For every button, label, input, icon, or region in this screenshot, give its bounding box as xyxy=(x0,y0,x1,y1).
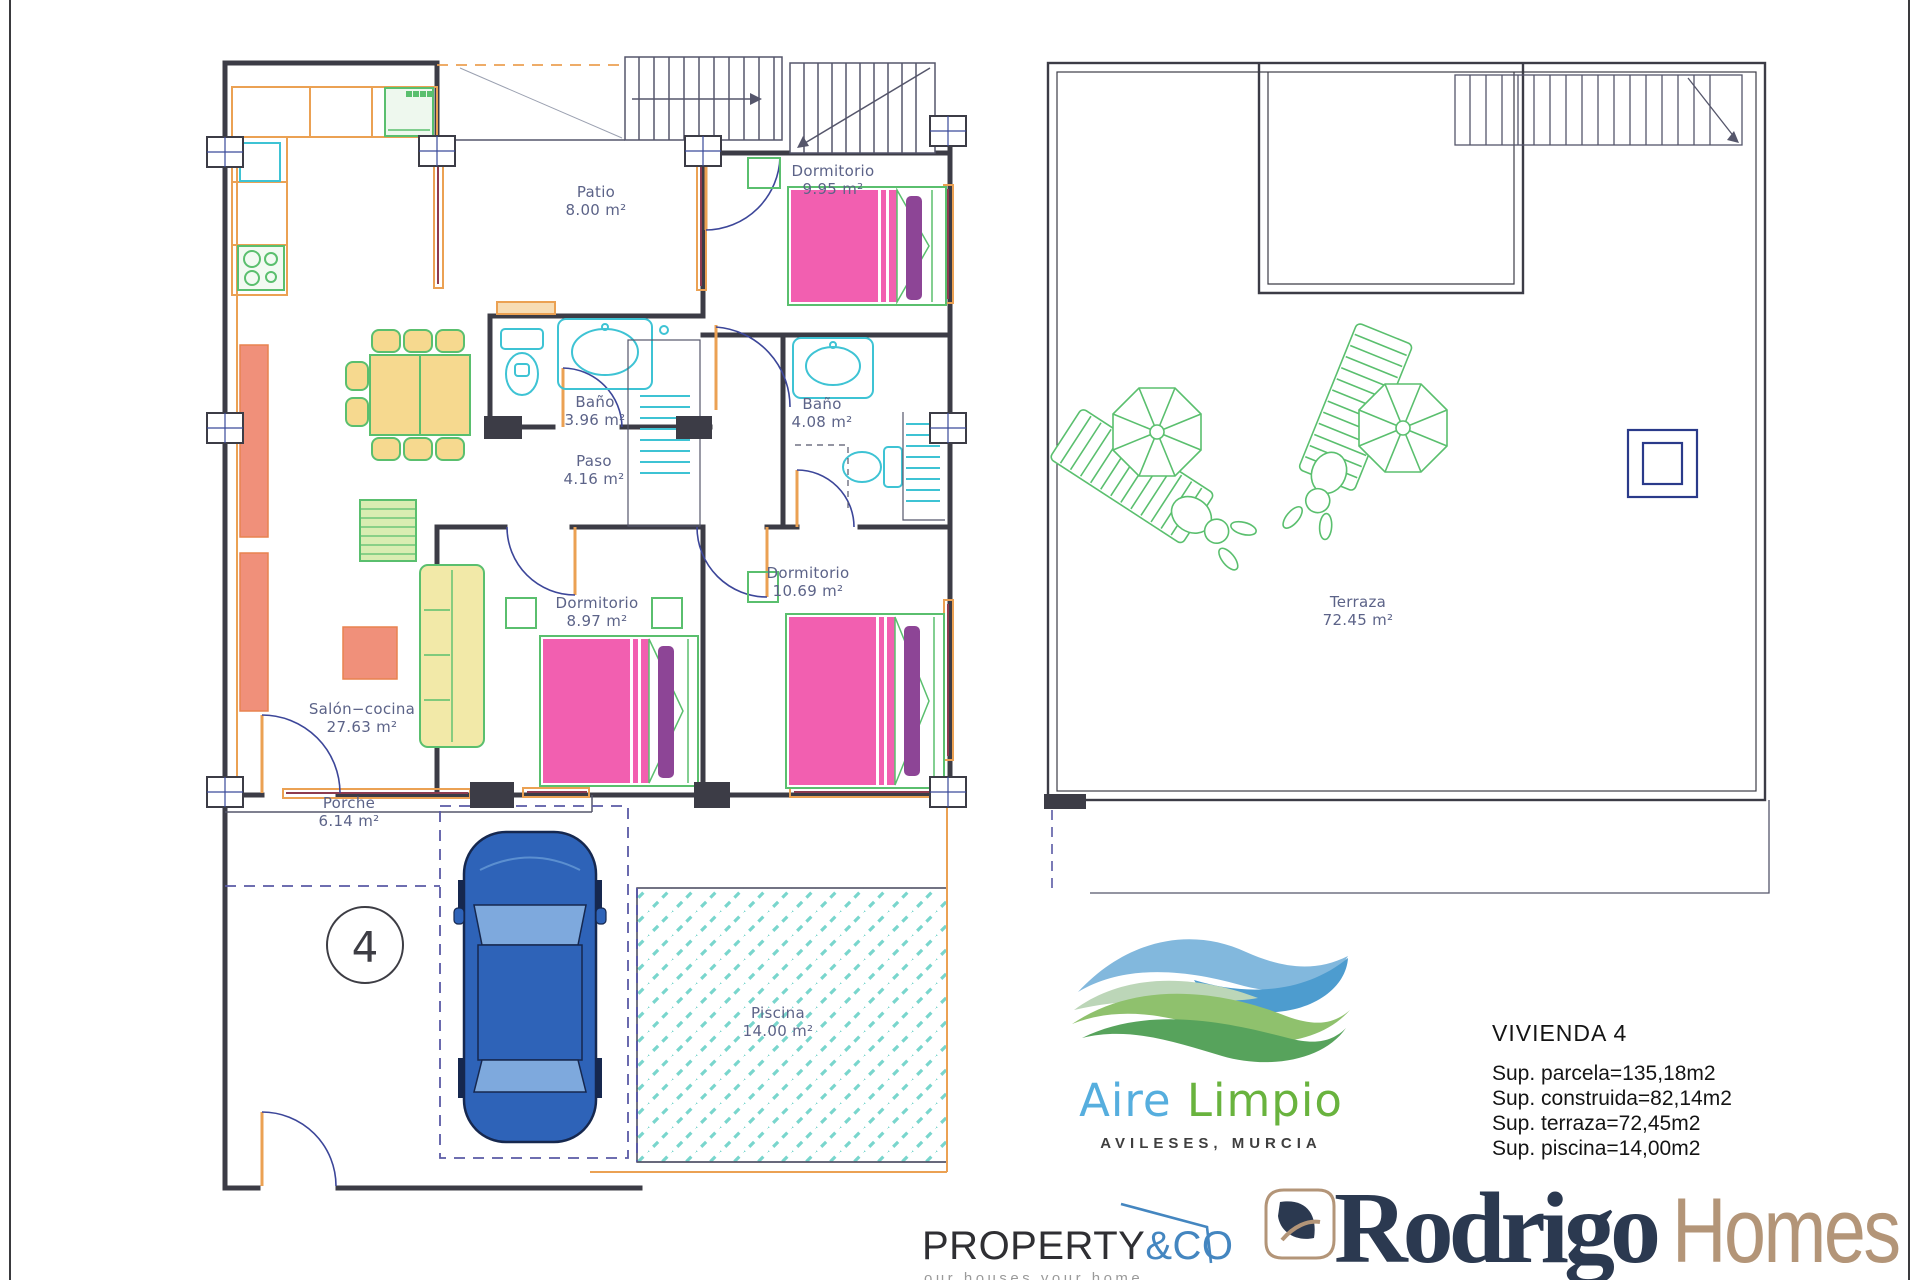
room-label-dormitorio-mid: Dormitorio 8.97 m² xyxy=(556,594,639,630)
car xyxy=(454,832,606,1142)
property-co-tagline: our houses your home xyxy=(924,1270,1143,1280)
coffee-table xyxy=(343,627,397,679)
terrace-pillar xyxy=(1044,794,1086,809)
unit-number: 4 xyxy=(352,923,379,972)
room-label-bano-1: Baño 3.96 m² xyxy=(565,393,626,429)
toilet-bano2 xyxy=(843,447,902,487)
room-label-paso: Paso 4.16 m² xyxy=(564,452,625,488)
surface-info-block: VIVIENDA 4 Sup. parcela=135,18m2 Sup. co… xyxy=(1492,1020,1732,1161)
terrace-furniture xyxy=(1049,323,1447,578)
kitchen-sink xyxy=(240,143,280,181)
sink-bano1 xyxy=(558,319,652,389)
floorplan-sheet: Patio 8.00 m² Dormitorio 9.95 m² Baño 3.… xyxy=(0,0,1920,1280)
room-label-piscina: Piscina 14.00 m² xyxy=(743,1004,814,1040)
fridge xyxy=(385,88,433,136)
surface-line: Sup. parcela=135,18m2 xyxy=(1492,1061,1732,1086)
surface-line: Sup. piscina=14,00m2 xyxy=(1492,1136,1732,1161)
bed-dormitorio-mid xyxy=(540,636,698,786)
skylight-square xyxy=(1628,430,1697,497)
stair-run-left xyxy=(625,57,782,140)
vivienda-title: VIVIENDA 4 xyxy=(1492,1020,1732,1047)
aire-limpio-subtitle: AVILESES, MURCIA xyxy=(1066,1135,1356,1152)
bed-dormitorio-top xyxy=(788,187,946,305)
stair-run-right xyxy=(790,63,935,153)
surface-line: Sup. construida=82,14m2 xyxy=(1492,1086,1732,1111)
umbrella xyxy=(1113,388,1201,476)
bed-dormitorio-right xyxy=(786,614,944,788)
toilet-bano1 xyxy=(501,329,543,395)
stove xyxy=(238,246,284,290)
room-label-porche: Porche 6.14 m² xyxy=(319,794,380,830)
aire-limpio-logo: Aire Limpio AVILESES, MURCIA xyxy=(1066,926,1356,1152)
room-label-dormitorio-top: Dormitorio 9.95 m² xyxy=(792,162,875,198)
rodrigo-homes-leaf-icon xyxy=(1264,1188,1336,1276)
rodrigo-homes-wordmark: Rodrigo Homes xyxy=(1334,1178,1920,1280)
aire-limpio-waves-icon xyxy=(1066,926,1356,1068)
aire-limpio-wordmark: Aire Limpio xyxy=(1066,1074,1356,1127)
terrace-lower-edge xyxy=(1090,800,1769,893)
sink-bano2 xyxy=(793,338,873,398)
property-co-logo: PROPERTY&CO our houses your home xyxy=(918,1196,1238,1280)
room-label-salon-cocina: Salón−cocina 27.63 m² xyxy=(309,700,415,736)
tv-sideboard xyxy=(360,500,416,561)
bano2-screen xyxy=(795,445,848,513)
dining-set xyxy=(346,330,470,460)
umbrella xyxy=(1359,384,1447,472)
nightstand xyxy=(652,598,682,628)
patio-door-sill xyxy=(497,302,555,314)
wall-cabinet xyxy=(240,345,268,537)
property-co-wordmark: PROPERTY&CO xyxy=(922,1224,1234,1269)
wall-cabinet xyxy=(240,553,268,711)
surface-line: Sup. terraza=72,45m2 xyxy=(1492,1111,1732,1136)
sofa xyxy=(420,565,484,747)
terrace-stairs xyxy=(1455,75,1742,145)
terrace-floor-plan xyxy=(1044,63,1769,893)
room-label-dormitorio-right: Dormitorio 10.69 m² xyxy=(767,564,850,600)
room-label-terraza: Terraza 72.45 m² xyxy=(1323,593,1394,629)
room-label-bano-2: Baño 4.08 m² xyxy=(792,395,853,431)
room-label-patio: Patio 8.00 m² xyxy=(566,183,627,219)
nightstand xyxy=(506,598,536,628)
